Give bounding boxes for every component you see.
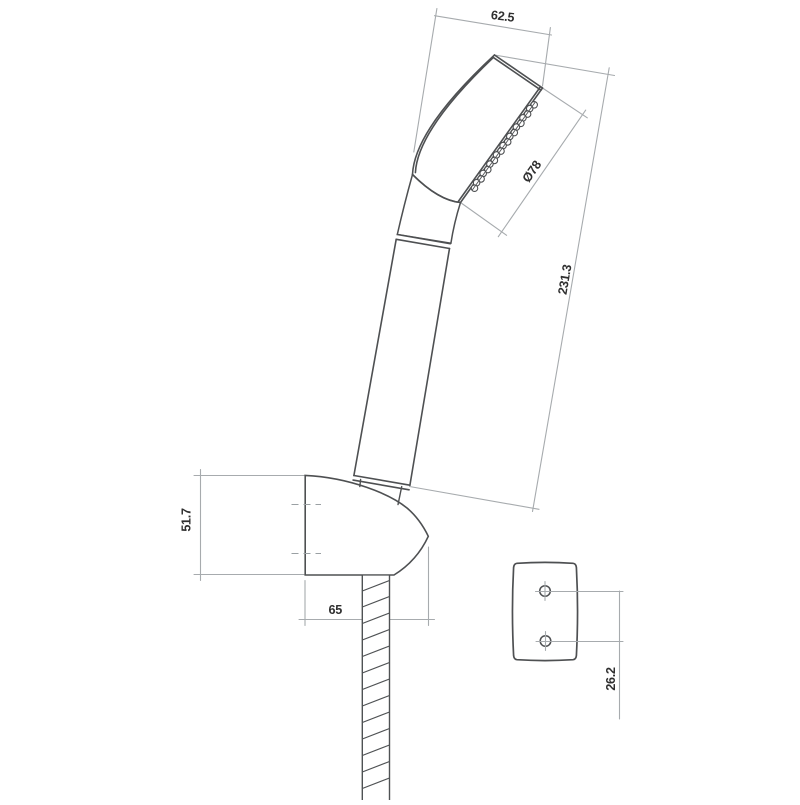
svg-text:65: 65 <box>328 603 342 617</box>
svg-text:51.7: 51.7 <box>180 508 194 532</box>
svg-text:62.5: 62.5 <box>490 8 515 25</box>
svg-text:26.2: 26.2 <box>604 667 618 691</box>
